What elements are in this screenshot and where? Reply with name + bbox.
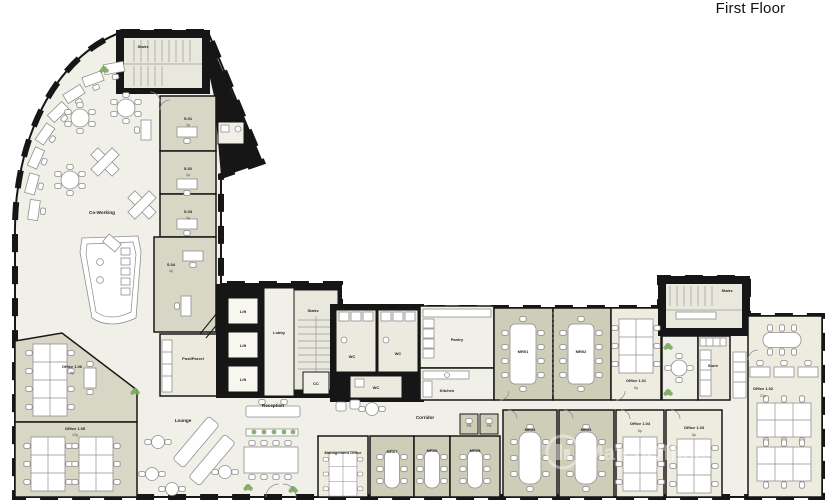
management-office-label: Management Office bbox=[325, 450, 363, 455]
lift-3-label: Lift bbox=[240, 377, 247, 382]
office-1-02-label: Office 1.02 bbox=[753, 386, 774, 391]
s01-cap: 1p bbox=[186, 123, 190, 127]
office-1-05-label: Office 1.05 bbox=[65, 426, 86, 431]
s01-label: S.01 bbox=[184, 116, 193, 121]
office-1-01-cap: 6p bbox=[634, 386, 638, 390]
stairs-core-label: Stairs bbox=[307, 308, 319, 313]
stairs-ne-label: Stairs bbox=[721, 288, 733, 293]
office-1-02-cap: 21p bbox=[760, 394, 766, 398]
wc-2-label: WC bbox=[395, 351, 402, 356]
wc-3-label: WC bbox=[373, 385, 380, 390]
mr06-table bbox=[417, 450, 447, 488]
office-1-06-desks bbox=[26, 344, 74, 416]
kitchen-label: Kitchen bbox=[440, 388, 455, 393]
room-lobby bbox=[264, 288, 294, 396]
office-1-05-desks bbox=[24, 437, 120, 491]
store-label: Store bbox=[708, 363, 719, 368]
office-1-04-label: Office 1.04 bbox=[630, 421, 651, 426]
watermark-text: MatchOffice bbox=[586, 442, 706, 465]
mr07-label: MR07 bbox=[387, 449, 398, 454]
s03-cap: 1p bbox=[186, 216, 190, 220]
s02-label: S.02 bbox=[184, 166, 193, 171]
pb2-chair bbox=[486, 419, 492, 424]
mr03-label: MR03 bbox=[581, 427, 592, 432]
office-1-01-desks bbox=[612, 319, 660, 373]
mr05-table bbox=[460, 450, 490, 488]
pb-2-label: PB bbox=[487, 424, 492, 428]
office-1-06-label: Office 1.06 bbox=[62, 364, 83, 369]
mr06-label: MR06 bbox=[427, 448, 438, 453]
lobby-label: Lobby bbox=[273, 330, 286, 335]
floorplan-page: First Floor bbox=[0, 0, 825, 500]
office-1-05-cap: 12p bbox=[72, 433, 78, 437]
s02-cap: 1p bbox=[186, 173, 190, 177]
cc-label: CC bbox=[313, 381, 319, 386]
s03-label: S.03 bbox=[184, 209, 193, 214]
management-office-desks bbox=[323, 452, 363, 496]
lift-1-label: Lift bbox=[240, 309, 247, 314]
mr01-label: MR01 bbox=[518, 349, 529, 354]
post-parcel-shelving bbox=[162, 340, 172, 392]
s04-cap: 1p bbox=[169, 269, 173, 273]
floorplan-drawing: Stairs Co-Working S.01 1p S.02 1p S.03 1… bbox=[0, 0, 825, 500]
office-1-03-cap: 6p bbox=[692, 433, 696, 437]
mr07-table bbox=[377, 450, 407, 488]
pantry-label: Pantry bbox=[451, 337, 464, 342]
reception-label: Reception bbox=[262, 403, 284, 408]
office-1-04-cap: 6p bbox=[638, 429, 642, 433]
lift-2-label: Lift bbox=[240, 343, 247, 348]
post-parcel-label: Post/Parcel bbox=[182, 356, 204, 361]
s04-label: S.04 bbox=[167, 262, 176, 267]
coworking-label: Co-Working bbox=[89, 210, 115, 215]
lounge-label: Lounge bbox=[175, 418, 192, 423]
corridor-label: Corridor bbox=[416, 415, 435, 420]
pb1-chair bbox=[466, 419, 472, 424]
office-1-06-cap: 9p bbox=[70, 371, 74, 375]
mr04-label: MR04 bbox=[525, 427, 536, 432]
mr02-label: MR02 bbox=[576, 349, 587, 354]
pb-1-label: PB bbox=[467, 424, 472, 428]
office-1-03-label: Office 1.03 bbox=[684, 425, 705, 430]
office-1-01-label: Office 1.01 bbox=[626, 378, 647, 383]
mr05-label: MR05 bbox=[470, 448, 481, 453]
stairs-nw-label: Stairs bbox=[137, 44, 149, 49]
wc-1-label: WC bbox=[349, 354, 356, 359]
